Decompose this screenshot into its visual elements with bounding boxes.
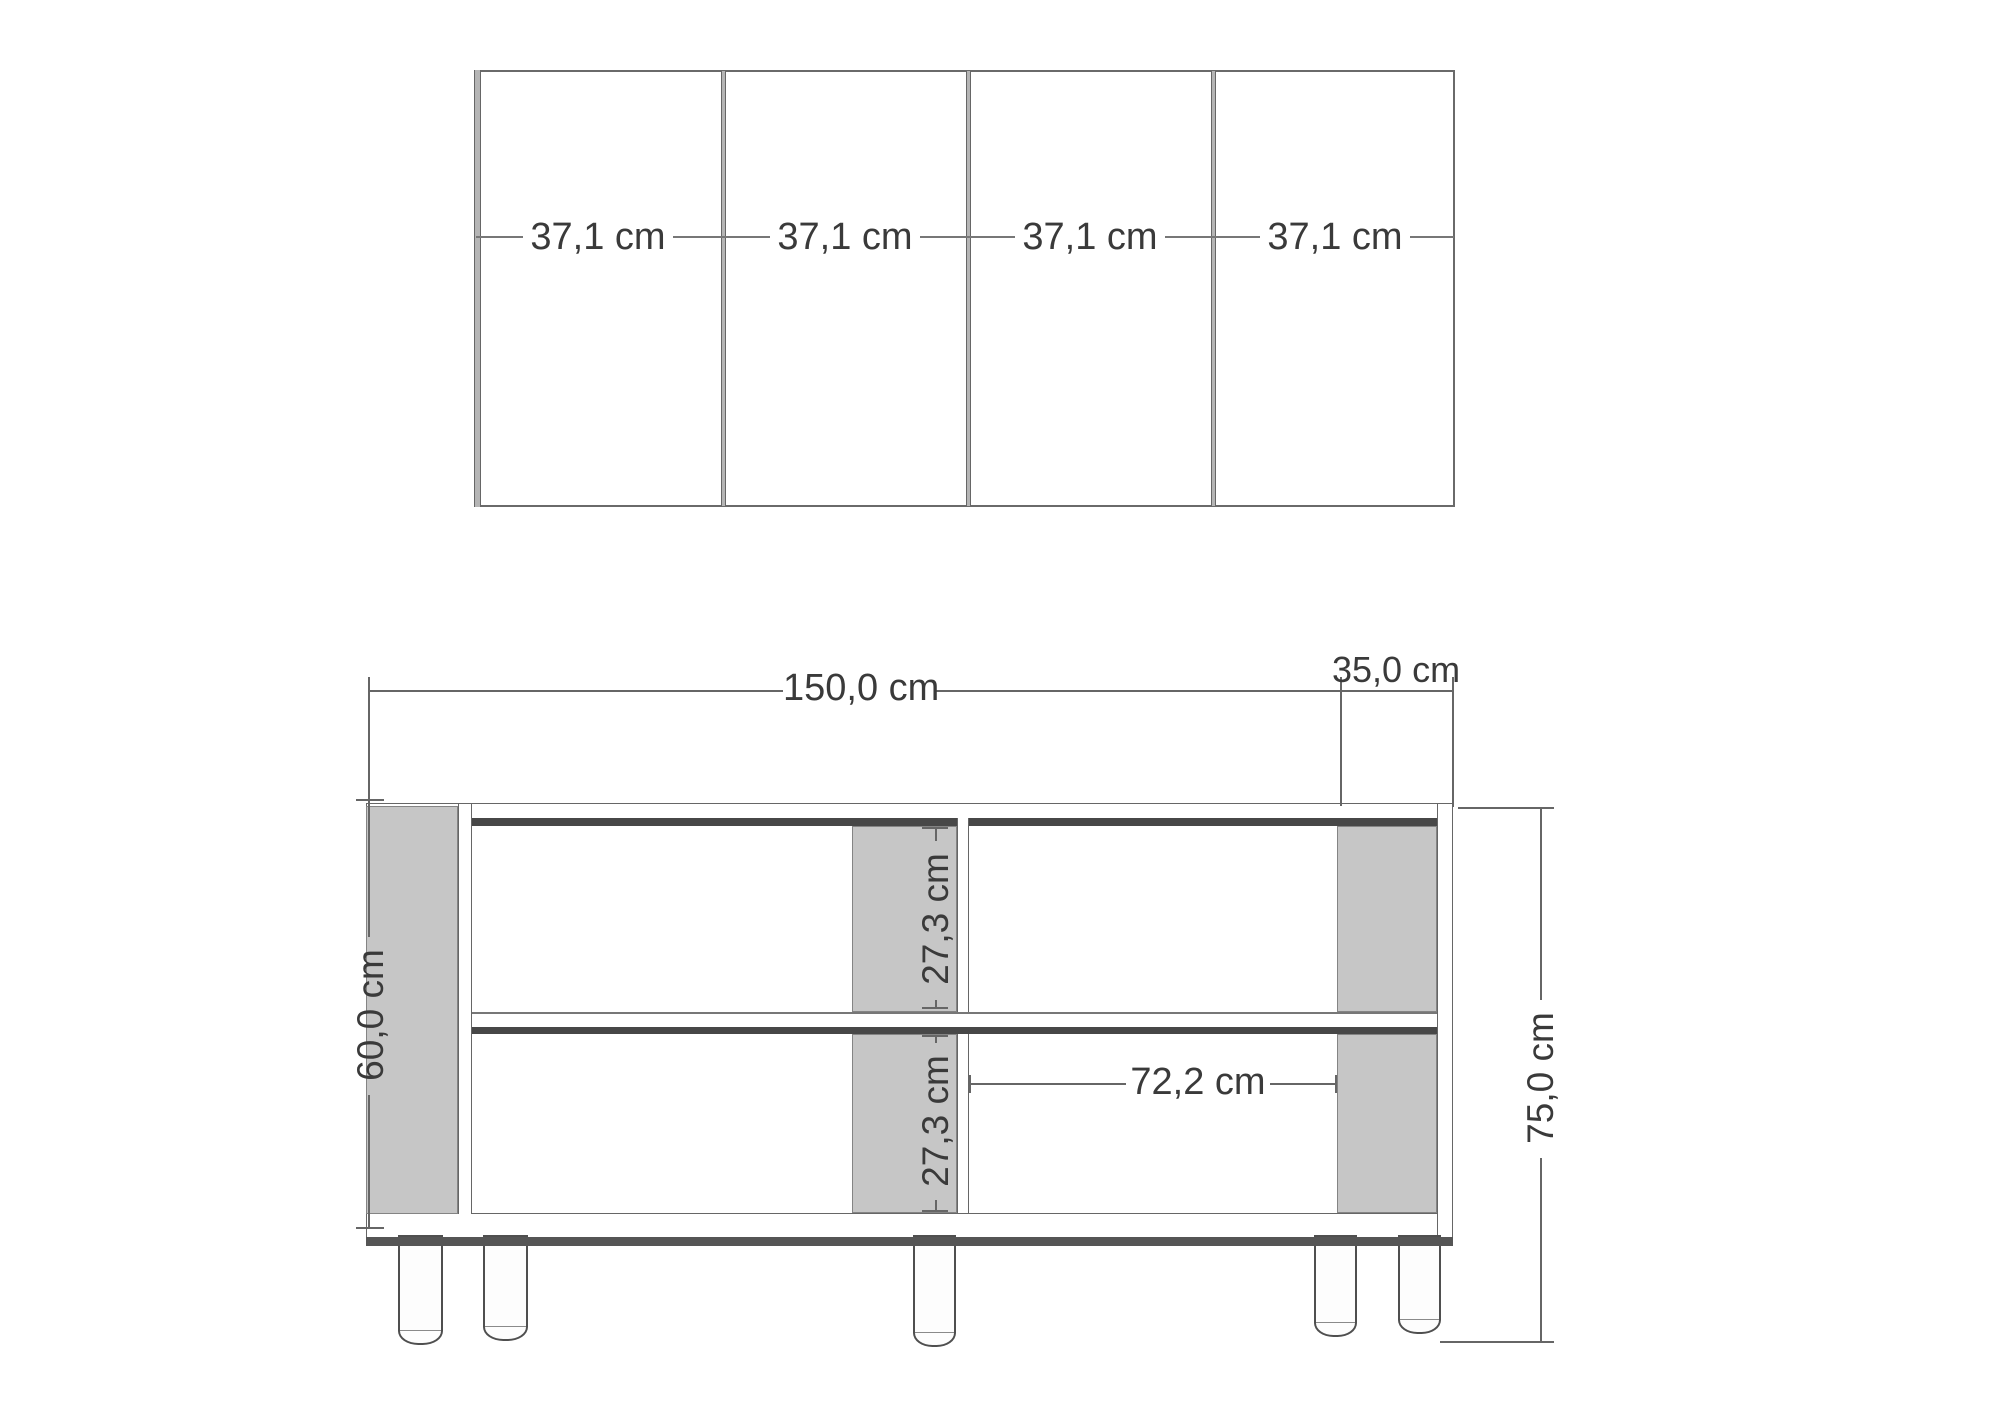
shelf-width-dim-line <box>1270 1083 1337 1085</box>
dim-tick <box>356 1227 384 1229</box>
plan-bay-width-label: 37,1 cm <box>770 217 920 257</box>
shelf-top-line <box>472 1012 1437 1014</box>
plan-divider-1 <box>721 71 726 506</box>
width-dim-line <box>935 690 1341 692</box>
side-height-dim-line <box>368 800 370 937</box>
dim-extension-line <box>1340 677 1342 806</box>
leg-front-right <box>1398 1235 1441 1334</box>
cabinet-right-edge <box>1437 804 1453 1240</box>
cabinet-top-panel <box>366 803 1453 819</box>
lower-comp-dim-label: 27,3 cm <box>916 1041 956 1201</box>
divider-front-edge-upper <box>957 818 969 1012</box>
depth-dim-line <box>1341 690 1452 692</box>
shelf-shadow-band <box>472 1027 1437 1034</box>
side-panel-left-front-edge <box>458 804 472 1214</box>
plan-bay-width-label: 37,1 cm <box>523 217 673 257</box>
plan-bay-width-label: 37,1 cm <box>1260 217 1410 257</box>
total-height-dim-line <box>1540 808 1542 1000</box>
dim-tick <box>1335 1075 1337 1093</box>
leg-middle <box>913 1235 956 1347</box>
dim-tick <box>922 1210 948 1212</box>
technical-drawing: 37,1 cm 37,1 cm 37,1 cm 37,1 cm <box>0 0 2000 1414</box>
side-panel-right-lower <box>1337 1034 1437 1213</box>
plan-dim-line <box>476 236 523 238</box>
plan-dim-line <box>1165 236 1260 238</box>
base-shadow-band <box>366 1237 1453 1246</box>
leg-back-left <box>398 1235 443 1345</box>
plan-divider-2 <box>966 71 971 506</box>
plan-outline <box>474 70 1455 507</box>
leg-front-left <box>483 1235 528 1341</box>
shelf-width-dim-label: 72,2 cm <box>1128 1062 1268 1102</box>
leg-back-right <box>1314 1235 1357 1337</box>
leg-foot-seam <box>1400 1319 1439 1320</box>
depth-dim-label: 35,0 cm <box>1332 650 1454 690</box>
divider-front-edge-lower <box>957 1034 969 1213</box>
leg-foot-seam <box>485 1326 526 1327</box>
total-height-dim-label: 75,0 cm <box>1521 998 1561 1158</box>
width-dim-label: 150,0 cm <box>783 668 935 708</box>
side-height-dim-label: 60,0 cm <box>351 935 391 1095</box>
side-panel-right-upper <box>1337 826 1437 1012</box>
leg-foot-seam <box>400 1330 441 1331</box>
plan-dim-line <box>920 236 1015 238</box>
plan-divider-3 <box>1211 71 1216 506</box>
side-height-dim-line <box>368 1095 370 1228</box>
top-shelf-shadow-band <box>472 818 1437 826</box>
leg-foot-seam <box>915 1332 954 1333</box>
plan-bay-width-label: 37,1 cm <box>1015 217 1165 257</box>
leg-foot-seam <box>1316 1322 1355 1323</box>
dim-tick <box>922 1007 948 1009</box>
plan-left-edge-panel <box>474 70 481 507</box>
plan-dim-line <box>1410 236 1454 238</box>
dim-extension-line <box>368 677 370 800</box>
dim-extension-line <box>1452 677 1454 807</box>
upper-comp-dim-label: 27,3 cm <box>916 839 956 999</box>
dim-tick <box>356 799 384 801</box>
total-height-dim-line <box>1540 1158 1542 1342</box>
cabinet-base-panel <box>366 1213 1453 1238</box>
width-dim-line <box>368 690 783 692</box>
plan-dim-line <box>673 236 770 238</box>
shelf-width-dim-line <box>970 1083 1126 1085</box>
floor-line <box>1440 1341 1554 1343</box>
